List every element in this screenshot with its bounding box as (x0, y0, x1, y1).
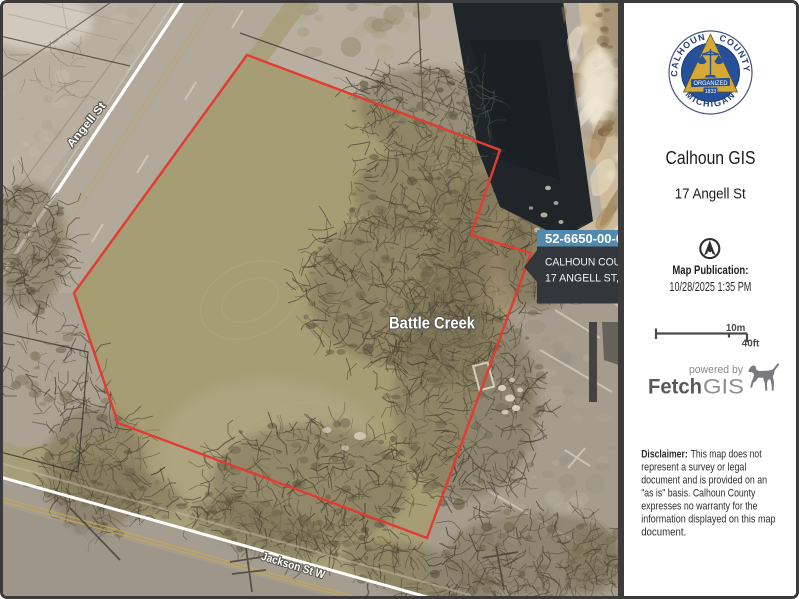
svg-text:GIS: GIS (703, 375, 744, 398)
svg-text:17 Angell St: 17 Angell St (675, 186, 747, 203)
svg-text:Map Publication:: Map Publication: (672, 263, 748, 277)
svg-text:17 ANGELL ST,: 17 ANGELL ST, (545, 273, 619, 285)
svg-text:powered by: powered by (689, 364, 743, 376)
svg-text:expresses no warranty for the: expresses no warranty for the (641, 501, 757, 513)
svg-text:40ft: 40ft (742, 339, 760, 350)
svg-text:Disclaimer:: Disclaimer: (641, 449, 688, 461)
svg-text:Battle Creek: Battle Creek (389, 314, 475, 333)
svg-text:Fetch: Fetch (648, 375, 702, 398)
svg-text:"as is" basis. Calhoun County: "as is" basis. Calhoun County (641, 488, 756, 500)
svg-text:document and is provided on an: document and is provided on an (641, 475, 767, 487)
svg-text:10/28/2025 1:35 PM: 10/28/2025 1:35 PM (669, 279, 751, 294)
svg-text:10m: 10m (726, 323, 746, 334)
svg-text:document.: document. (641, 527, 686, 539)
svg-text:N: N (707, 250, 712, 259)
svg-text:represent a survey or legal: represent a survey or legal (641, 462, 746, 474)
svg-text:CALHOUN COU: CALHOUN COU (545, 257, 619, 269)
svg-text:1833: 1833 (705, 89, 717, 95)
svg-text:This map does not: This map does not (691, 449, 762, 461)
svg-text:52-6650-00-0: 52-6650-00-0 (545, 231, 619, 246)
svg-text:information displayed on this: information displayed on this map (641, 514, 775, 526)
svg-text:ORGANIZED: ORGANIZED (694, 80, 728, 87)
svg-text:Calhoun GIS: Calhoun GIS (666, 148, 756, 168)
